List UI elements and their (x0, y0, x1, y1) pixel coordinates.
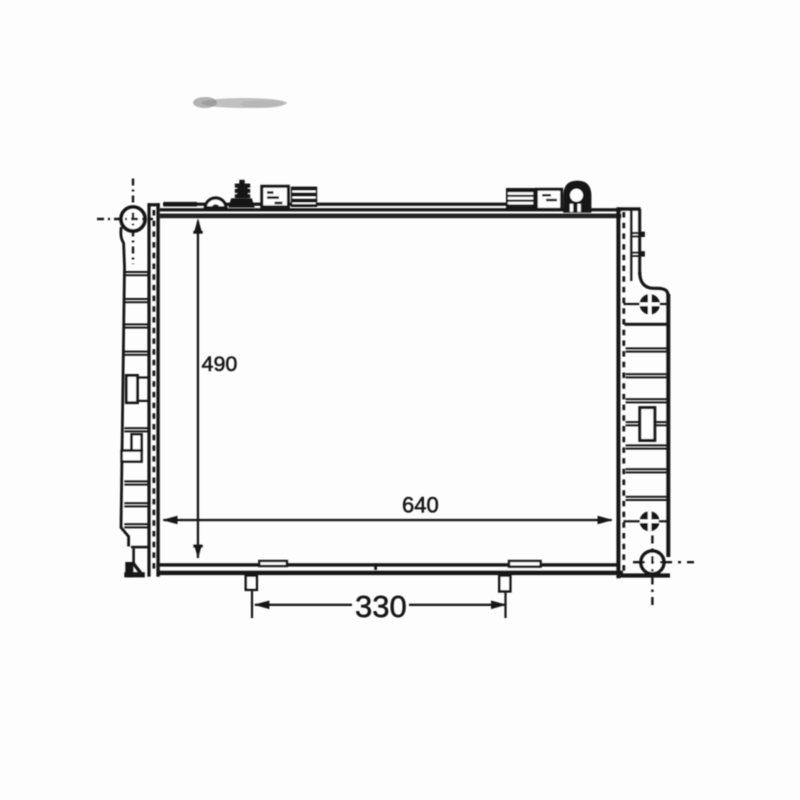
svg-text:330: 330 (355, 589, 407, 624)
svg-text:490: 490 (202, 352, 238, 376)
svg-text:640: 640 (402, 492, 439, 517)
